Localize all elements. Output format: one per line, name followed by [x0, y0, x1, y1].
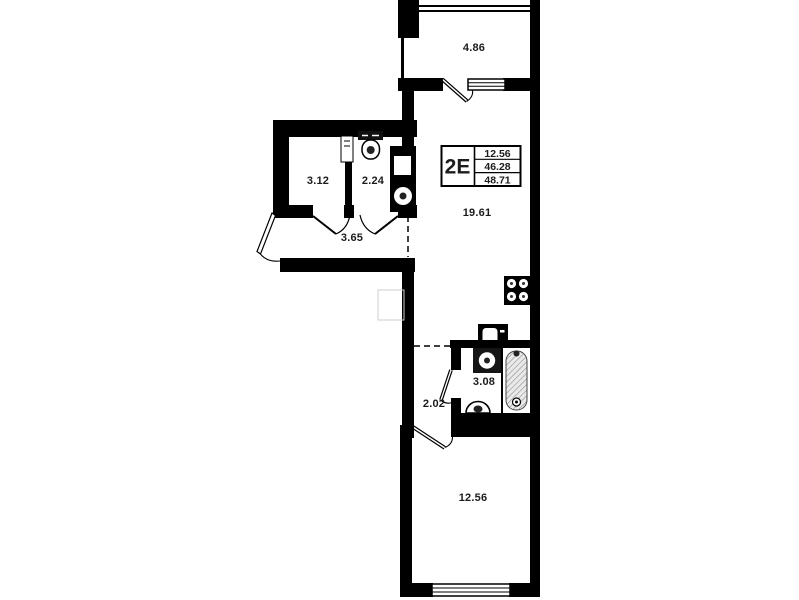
wall — [451, 425, 540, 437]
stove-icon — [504, 276, 531, 305]
wall-left — [273, 120, 289, 215]
bathtub-icon — [502, 347, 531, 414]
bedroom: 12.56 — [400, 425, 540, 597]
room-label-kitchen-living: 19.61 — [463, 207, 492, 219]
apartment-floor-plan: 4.86 — [0, 0, 799, 600]
toilet-icon — [358, 131, 383, 159]
door-swing — [412, 426, 453, 449]
unit-area-2: 46.28 — [484, 161, 510, 173]
toilet-icon — [466, 402, 490, 414]
room-label-bathroom: 3.08 — [473, 376, 495, 388]
floor-plan-canvas: 4.86 — [0, 0, 799, 600]
wall — [401, 36, 404, 80]
kitchen-living-room: 19.61 — [378, 207, 531, 348]
room-label-bedroom: 12.56 — [459, 492, 488, 504]
unit-info-card: 2E 12.56 46.28 48.71 — [442, 146, 521, 186]
wall-right — [530, 0, 540, 597]
window — [468, 79, 505, 90]
wall — [273, 120, 417, 137]
balcony: 4.86 — [398, 0, 540, 102]
washer-icon — [394, 156, 411, 175]
wall — [273, 205, 313, 218]
room-label-corridor: 2.02 — [423, 398, 445, 410]
adjacent-shaft-outline — [378, 290, 404, 320]
room-label-room-a: 3.12 — [307, 175, 329, 187]
sink-drain — [400, 193, 407, 200]
wall — [509, 583, 540, 597]
wall — [402, 258, 414, 438]
corridor: 2.02 — [423, 398, 445, 410]
wall — [400, 583, 433, 597]
wall — [280, 258, 415, 272]
wall — [398, 0, 419, 38]
entrance-door-swing — [257, 213, 280, 261]
wall — [451, 348, 461, 370]
room-label-room-b: 2.24 — [362, 175, 385, 187]
storage-and-wc-block: 3.12 2.24 — [273, 120, 417, 234]
washbasin-icon — [473, 348, 502, 373]
room-label-balcony: 4.86 — [463, 42, 485, 54]
wall — [344, 205, 354, 218]
door-swing — [360, 215, 398, 234]
window — [432, 584, 510, 596]
duct-shaft-icon — [341, 136, 353, 162]
bathroom: 3.08 — [440, 340, 540, 425]
unit-area-1: 12.56 — [484, 148, 510, 160]
wall — [451, 398, 461, 415]
unit-area-3: 48.71 — [484, 174, 510, 186]
utility-niche — [390, 146, 416, 212]
balcony-window — [419, 5, 531, 12]
room-label-hallway: 3.65 — [341, 232, 363, 244]
unit-code: 2E — [445, 156, 471, 179]
wall — [400, 425, 412, 597]
